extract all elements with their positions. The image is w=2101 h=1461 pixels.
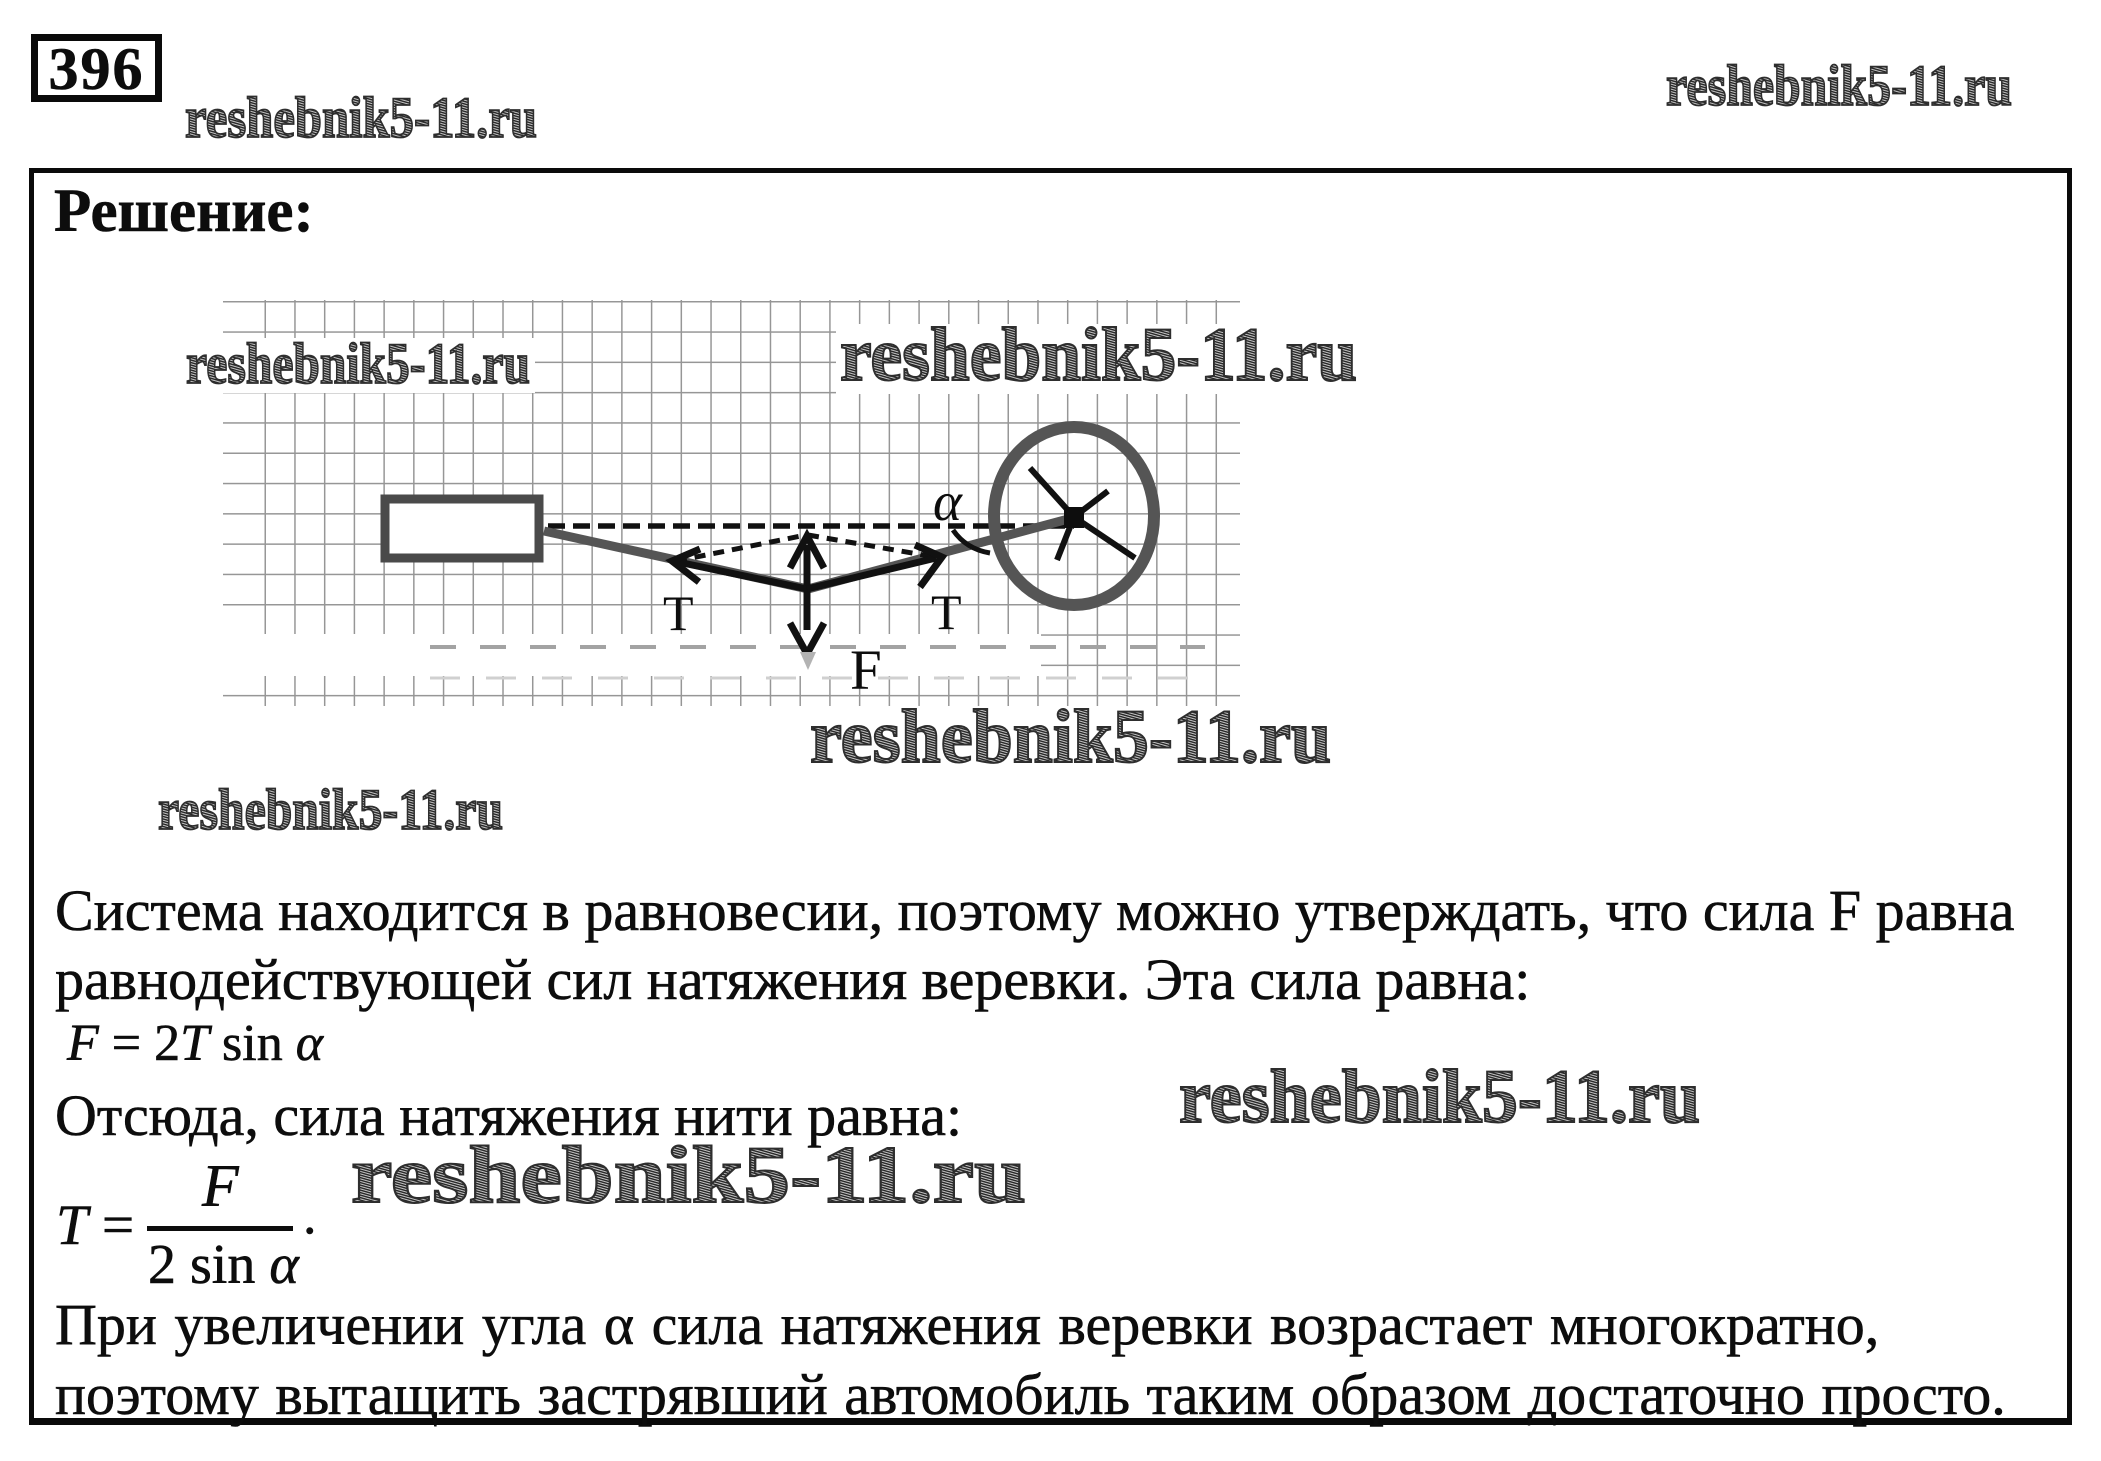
svg-text:reshebnik5-11.ru: reshebnik5-11.ru (158, 777, 503, 842)
svg-text:reshebnik5-11.ru: reshebnik5-11.ru (1666, 53, 2012, 118)
svg-text:reshebnik5-11.ru: reshebnik5-11.ru (840, 313, 1357, 397)
svg-text:reshebnik5-11.ru: reshebnik5-11.ru (1179, 1055, 1700, 1139)
svg-text:F: F (850, 639, 882, 702)
svg-text:α: α (933, 471, 963, 532)
svg-text:reshebnik5-11.ru: reshebnik5-11.ru (186, 331, 530, 396)
svg-text:T: T (931, 584, 962, 640)
svg-text:T: T (663, 585, 694, 641)
svg-text:reshebnik5-11.ru: reshebnik5-11.ru (810, 695, 1331, 779)
svg-text:reshebnik5-11.ru: reshebnik5-11.ru (185, 85, 537, 150)
